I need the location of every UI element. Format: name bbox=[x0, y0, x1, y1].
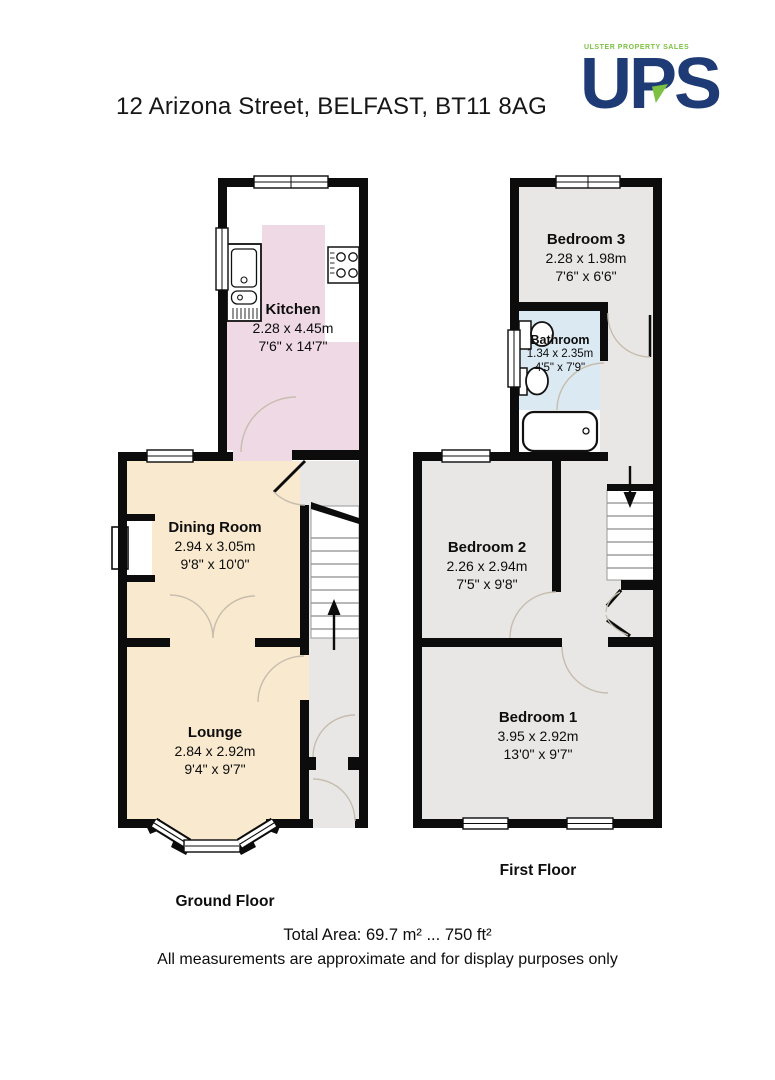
room-name: Dining Room bbox=[127, 518, 303, 537]
disclaimer-text: All measurements are approximate and for… bbox=[0, 951, 775, 969]
bedroom-3-label: Bedroom 3 2.28 x 1.98m 7'6" x 6'6" bbox=[512, 230, 660, 285]
room-size-metric: 1.34 x 2.35m bbox=[504, 347, 616, 361]
room-size-metric: 2.26 x 2.94m bbox=[414, 557, 560, 575]
kitchen-hob bbox=[328, 247, 359, 283]
room-size-metric: 2.94 x 3.05m bbox=[127, 537, 303, 555]
first-floor-label: First Floor bbox=[458, 862, 618, 880]
floorplan-drawing bbox=[0, 0, 775, 1080]
room-name: Bathroom bbox=[504, 333, 616, 347]
room-size-metric: 3.95 x 2.92m bbox=[430, 727, 646, 745]
bedroom-2-label: Bedroom 2 2.26 x 2.94m 7'5" x 9'8" bbox=[414, 538, 560, 593]
floorplan-page: 12 Arizona Street, BELFAST, BT11 8AG ULS… bbox=[0, 0, 775, 1080]
room-name: Bedroom 2 bbox=[414, 538, 560, 557]
bathroom-label: Bathroom 1.34 x 2.35m 4'5" x 7'9" bbox=[504, 333, 616, 375]
room-size-metric: 2.84 x 2.92m bbox=[127, 742, 303, 760]
room-size-imperial: 9'8" x 10'0" bbox=[127, 555, 303, 573]
lounge-label: Lounge 2.84 x 2.92m 9'4" x 9'7" bbox=[127, 723, 303, 778]
room-size-metric: 2.28 x 1.98m bbox=[512, 249, 660, 267]
room-size-imperial: 4'5" x 7'9" bbox=[504, 361, 616, 375]
room-name: Kitchen bbox=[219, 300, 367, 319]
room-size-imperial: 13'0" x 9'7" bbox=[430, 745, 646, 763]
room-size-imperial: 9'4" x 9'7" bbox=[127, 760, 303, 778]
room-size-imperial: 7'5" x 9'8" bbox=[414, 575, 560, 593]
room-name: Lounge bbox=[127, 723, 303, 742]
room-size-imperial: 7'6" x 6'6" bbox=[512, 267, 660, 285]
dining-room-label: Dining Room 2.94 x 3.05m 9'8" x 10'0" bbox=[127, 518, 303, 573]
ground-floor-label: Ground Floor bbox=[145, 893, 305, 911]
total-area-text: Total Area: 69.7 m² ... 750 ft² bbox=[0, 926, 775, 945]
room-name: Bedroom 3 bbox=[512, 230, 660, 249]
room-size-imperial: 7'6" x 14'7" bbox=[219, 337, 367, 355]
room-size-metric: 2.28 x 4.45m bbox=[219, 319, 367, 337]
bedroom-1-label: Bedroom 1 3.95 x 2.92m 13'0" x 9'7" bbox=[430, 708, 646, 763]
kitchen-label: Kitchen 2.28 x 4.45m 7'6" x 14'7" bbox=[219, 300, 367, 355]
bathroom-bath bbox=[523, 412, 597, 451]
room-name: Bedroom 1 bbox=[430, 708, 646, 727]
